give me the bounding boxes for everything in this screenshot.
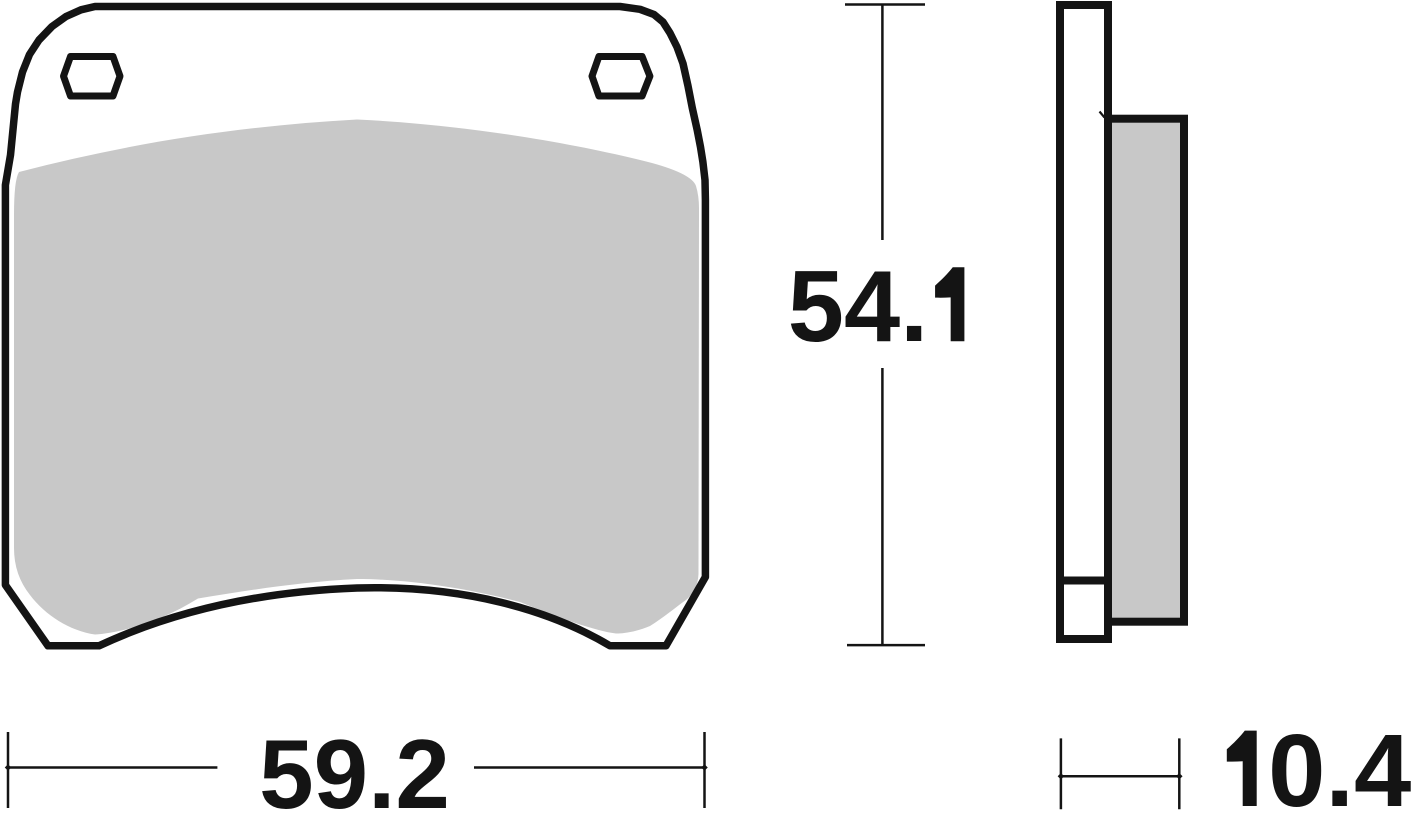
svg-text:0.4: 0.4 bbox=[1268, 713, 1411, 813]
svg-text:59.2: 59.2 bbox=[259, 719, 450, 813]
svg-text:54.: 54. bbox=[788, 251, 928, 363]
